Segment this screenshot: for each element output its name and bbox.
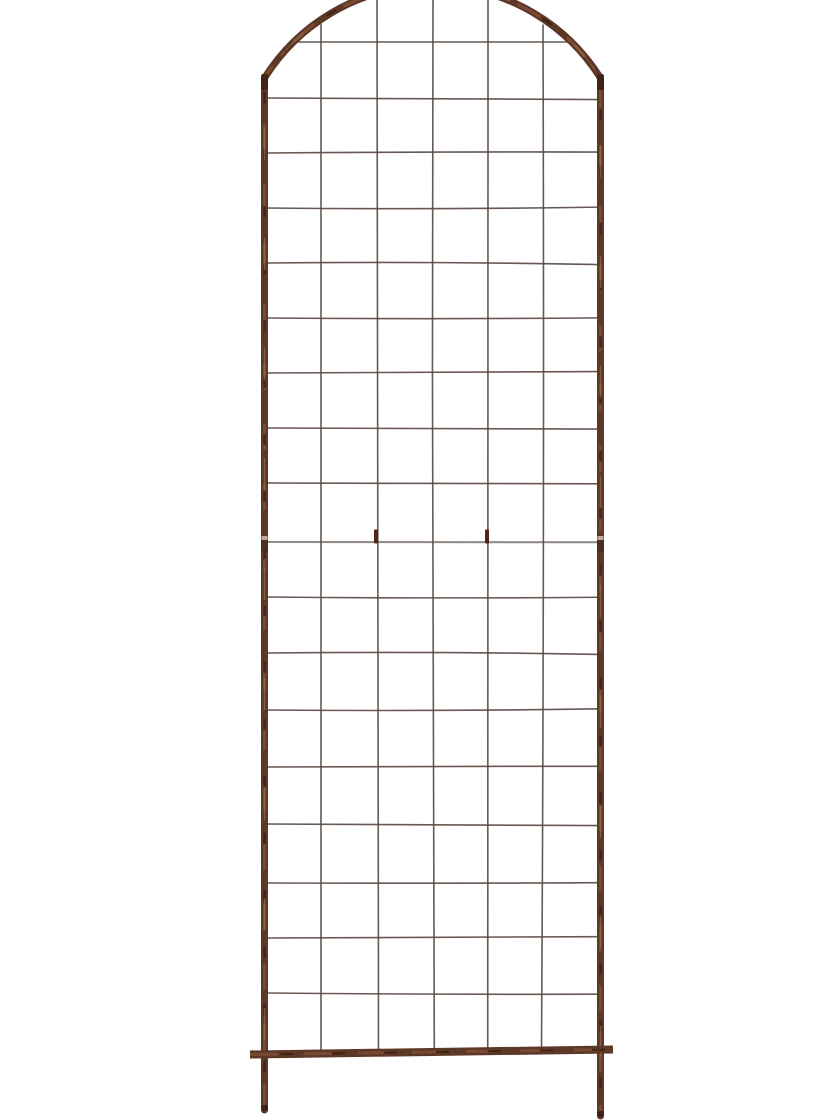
rail-sleeve-joint xyxy=(597,540,604,552)
rail-sleeve-gap xyxy=(598,536,604,540)
right-leg-tip xyxy=(597,1111,604,1117)
grid-wire-horizontal xyxy=(266,937,599,938)
product-photo-stage xyxy=(0,0,840,1120)
arch-elbow-joint xyxy=(261,74,268,90)
rail-sleeve-joint xyxy=(261,540,268,552)
trellis-svg xyxy=(0,0,840,1120)
grid-wire-vertical xyxy=(541,25,543,1050)
arch-elbow-joint xyxy=(597,74,604,90)
grid-wire-vertical xyxy=(432,0,434,1050)
grid-wire-horizontal xyxy=(266,824,599,826)
rail-sleeve-gap xyxy=(262,536,268,540)
grid-wire-horizontal xyxy=(266,883,599,884)
panel-joint-tab xyxy=(485,530,489,544)
panel-joint-tab xyxy=(374,530,378,544)
grid-wire-horizontal xyxy=(266,993,599,994)
grid-wire-horizontal xyxy=(266,709,599,711)
left-leg-tip xyxy=(261,1105,268,1111)
grid-wire-vertical xyxy=(377,0,378,1050)
grid-wire-horizontal xyxy=(266,766,599,767)
